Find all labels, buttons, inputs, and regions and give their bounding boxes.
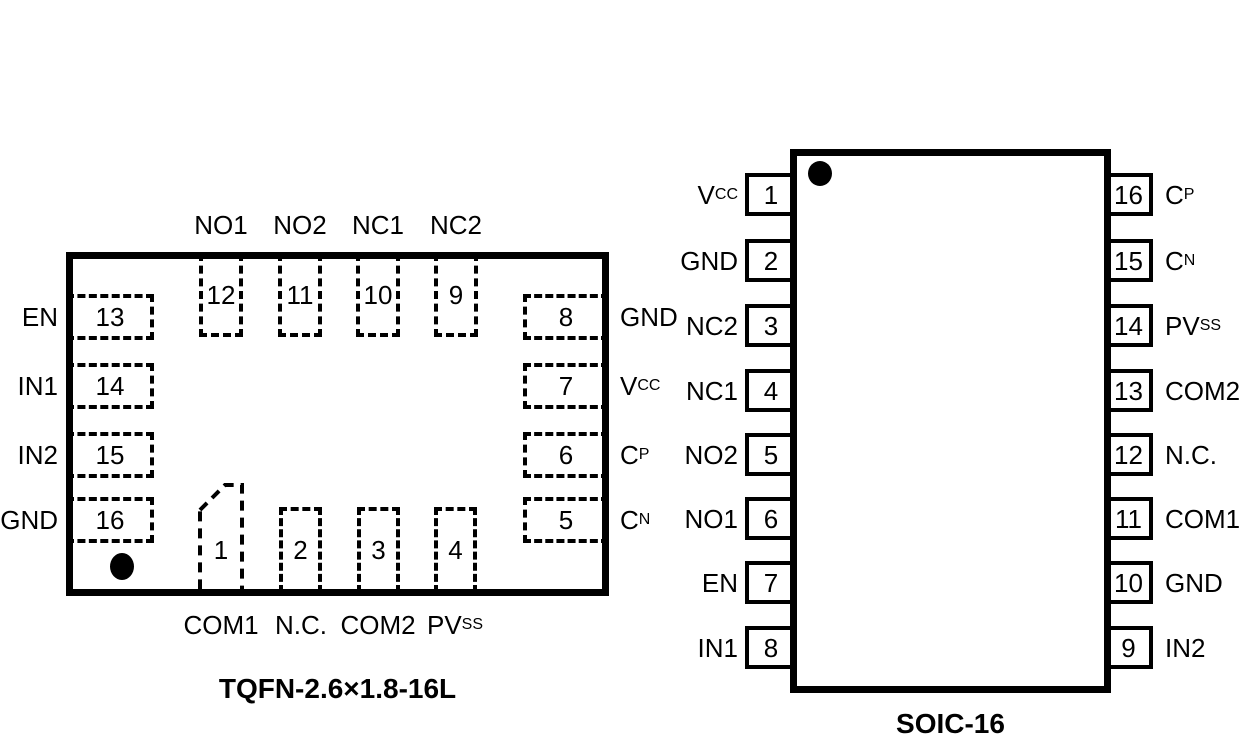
tqfn-pin-number-11: 11	[278, 253, 322, 337]
soic-pin-number-10: 10	[1104, 561, 1153, 604]
soic-pin-number-2: 2	[745, 239, 797, 282]
tqfn-pin-number-4: 4	[434, 507, 477, 593]
tqfn-pin-9-label: NC2	[406, 208, 506, 242]
tqfn-pin-4-label: PVSS	[400, 609, 510, 641]
soic-pin-number-16: 16	[1104, 173, 1153, 216]
soic-pin-number-3: 3	[745, 304, 797, 347]
soic-pin-number-1: 1	[745, 173, 797, 216]
soic-pin-11-label: COM1	[1165, 497, 1242, 540]
soic-pin-12-label: N.C.	[1165, 433, 1242, 476]
soic-package-outline	[790, 149, 1111, 693]
soic-pin-number-11: 11	[1104, 497, 1153, 540]
soic-package-title: SOIC-16	[790, 708, 1111, 740]
tqfn-pin-number-13: 13	[66, 294, 154, 340]
soic-pin-10-label: GND	[1165, 561, 1242, 604]
tqfn-pin1-indicator-dot	[110, 553, 134, 580]
soic-pin-16-label: CP	[1165, 173, 1242, 216]
soic-pin-number-5: 5	[745, 433, 797, 476]
tqfn-pin-number-1: 1	[199, 507, 243, 593]
soic-pin-14-label: PVSS	[1165, 304, 1242, 347]
soic-pin-number-8: 8	[745, 626, 797, 669]
tqfn-pin-number-3: 3	[357, 507, 400, 593]
soic-pin-number-6: 6	[745, 497, 797, 540]
tqfn-pin-number-14: 14	[66, 363, 154, 409]
soic-pin-6-label: NO1	[590, 497, 738, 540]
soic-pin-3-label: NC2	[590, 304, 738, 347]
tqfn-pin-13-label: EN	[0, 294, 58, 340]
soic-pin-number-14: 14	[1104, 304, 1153, 347]
tqfn-pin-number-6: 6	[523, 432, 609, 478]
tqfn-pin-number-7: 7	[523, 363, 609, 409]
soic-pin-13-label: COM2	[1165, 369, 1242, 412]
soic-pin1-indicator-dot	[808, 161, 832, 186]
soic-pin-number-15: 15	[1104, 239, 1153, 282]
pin-configuration-diagram: 13 14 15 16 EN IN1 IN2 GND 12 11 10 9 NO…	[0, 0, 1242, 742]
tqfn-pin-15-label: IN2	[0, 432, 58, 478]
tqfn-pin-number-5: 5	[523, 497, 609, 543]
soic-pin-4-label: NC1	[590, 369, 738, 412]
soic-pin-number-9: 9	[1104, 626, 1153, 669]
soic-pin-number-7: 7	[745, 561, 797, 604]
soic-pin-8-label: IN1	[590, 626, 738, 669]
soic-pin-5-label: NO2	[590, 433, 738, 476]
tqfn-pin-number-8: 8	[523, 294, 609, 340]
tqfn-pin-16-label: GND	[0, 497, 58, 543]
tqfn-pin-14-label: IN1	[0, 363, 58, 409]
soic-pin-9-label: IN2	[1165, 626, 1242, 669]
soic-pin-number-12: 12	[1104, 433, 1153, 476]
soic-pin-2-label: GND	[590, 239, 738, 282]
soic-pin-1-label: VCC	[590, 173, 738, 216]
tqfn-pin-number-10: 10	[356, 253, 400, 337]
soic-pin-7-label: EN	[590, 561, 738, 604]
soic-pin-15-label: CN	[1165, 239, 1242, 282]
tqfn-pin-number-2: 2	[279, 507, 322, 593]
soic-pin-number-13: 13	[1104, 369, 1153, 412]
tqfn-pin-number-9: 9	[434, 253, 478, 337]
tqfn-pin-number-16: 16	[66, 497, 154, 543]
tqfn-pin-number-12: 12	[199, 253, 243, 337]
soic-pin-number-4: 4	[745, 369, 797, 412]
tqfn-pin-number-15: 15	[66, 432, 154, 478]
tqfn-package-title: TQFN-2.6×1.8-16L	[66, 673, 609, 705]
